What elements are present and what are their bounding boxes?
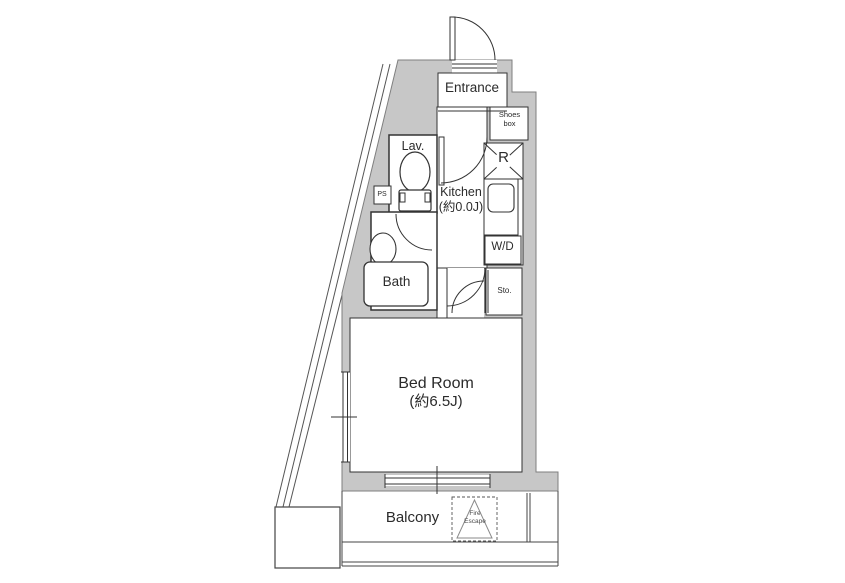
- entrance-door-leaf: [450, 17, 455, 60]
- entrance-label: Entrance: [437, 81, 507, 96]
- toilet-icon: [399, 152, 431, 211]
- balcony-divider: [527, 493, 530, 542]
- shoes-box-label: Shoes box: [491, 110, 528, 128]
- bath-label: Bath: [365, 275, 428, 290]
- kitchen-label: Kitchen (約0.0J): [433, 185, 489, 215]
- lav-label: Lav.: [391, 140, 435, 154]
- storage-label: Sto.: [489, 287, 520, 296]
- fire-escape-label: Fire Escape: [452, 510, 498, 526]
- entrance-door-gap: [452, 60, 497, 74]
- corridor-wall-stub: [437, 268, 447, 318]
- kitchen-door-leaf: [439, 137, 444, 185]
- floor-plan-drawing: [0, 0, 845, 583]
- bedroom-label: Bed Room (約6.5J): [350, 375, 522, 411]
- stair-block: [275, 507, 340, 568]
- balcony-outline: [342, 491, 558, 566]
- ps-label: PS: [373, 191, 391, 199]
- entrance-door: [450, 17, 495, 60]
- washbasin-icon: [370, 233, 396, 265]
- floor-plan: Entrance Shoes box Lav. PS Kitchen (約0.0…: [0, 0, 845, 583]
- refrigerator-label: R: [484, 150, 523, 167]
- washer-dryer-label: W/D: [483, 241, 522, 254]
- entrance-door-arc: [452, 17, 495, 60]
